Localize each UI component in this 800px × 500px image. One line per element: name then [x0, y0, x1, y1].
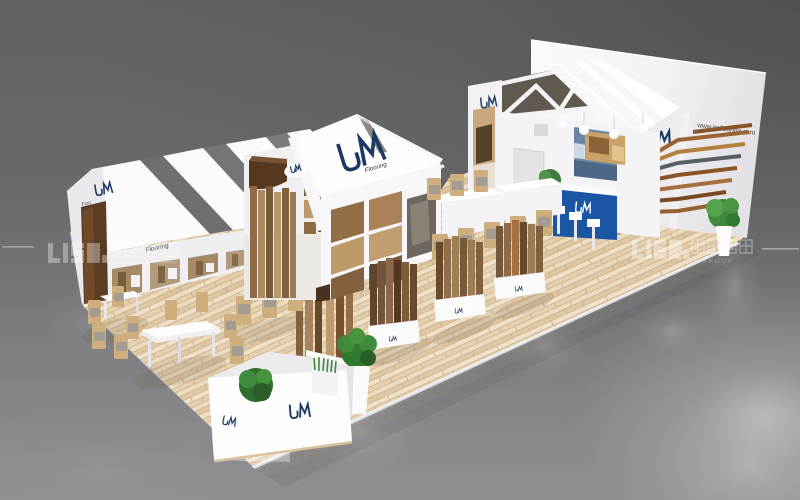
svg-text:GROUP: GROUP [702, 259, 734, 265]
